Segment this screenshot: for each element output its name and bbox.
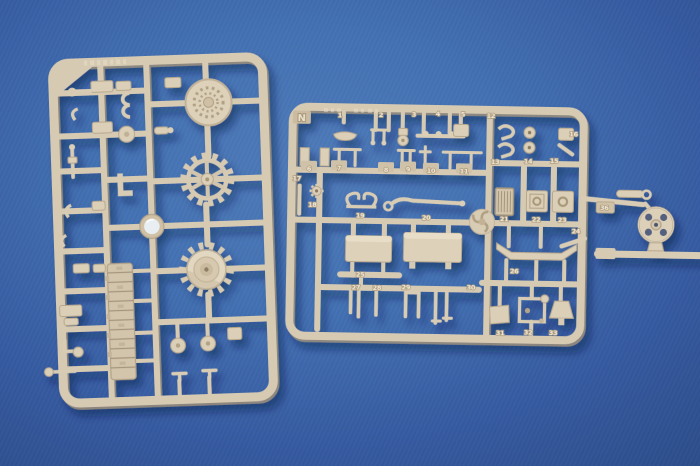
stowage-dish — [333, 132, 356, 141]
part-number-label: 36 — [600, 204, 609, 212]
part-number-label: 15 — [550, 157, 559, 165]
part-number-label: 13 — [491, 158, 500, 166]
part-number-label: 27 — [352, 284, 361, 292]
sprue-letter: N — [298, 113, 307, 124]
fuel-tank-1 — [345, 223, 392, 262]
sprue-right: N — [289, 106, 700, 345]
pins-and-fork — [350, 291, 452, 324]
part-number-label: 33 — [549, 329, 558, 337]
scroll-bracket — [346, 193, 376, 207]
rollers — [524, 127, 536, 153]
part-number-label: 16 — [569, 130, 578, 138]
u-bracket — [370, 130, 386, 146]
part-number-label: 2 — [379, 111, 383, 119]
photo-backdrop: N — [0, 0, 700, 466]
perforated-roadwheel — [185, 79, 233, 127]
part-number-label: 22 — [532, 216, 541, 224]
part-number-label: 20 — [422, 214, 431, 222]
lamp-cone-33 — [549, 301, 573, 325]
fuel-tank-2 — [403, 220, 462, 269]
starburst-wheel — [309, 184, 323, 198]
block-part-5 — [454, 124, 469, 136]
part-number-label: 10 — [427, 167, 436, 175]
idler-wheel — [638, 204, 674, 252]
hatch-box-23 — [552, 191, 573, 212]
part-number-label: 24 — [572, 227, 581, 235]
sprue-left — [34, 54, 276, 406]
part-number-label: 19 — [356, 212, 365, 220]
part-number-label: 28 — [373, 284, 382, 292]
small-hub-cap — [118, 126, 135, 143]
pulley-part — [398, 128, 409, 145]
part-number-label: 21 — [500, 215, 509, 223]
frame-bracket-32 — [519, 294, 548, 323]
part-number-label: 31 — [496, 329, 505, 337]
part-number-label: 30 — [467, 284, 476, 292]
part-number-label: 29 — [402, 283, 411, 291]
hook-pawls — [498, 126, 513, 158]
drive-sprocket-cone — [182, 245, 232, 295]
hatch-box-22 — [526, 191, 547, 212]
part-number-label: 25 — [356, 271, 365, 279]
radiator-grille — [495, 188, 513, 215]
part-number-label: 3 — [412, 111, 416, 119]
part-number-label: 14 — [524, 158, 533, 166]
plate-31 — [489, 305, 509, 324]
t-shaped-parts — [173, 370, 216, 380]
three-blade-fan — [469, 209, 494, 234]
part-number-label: 12 — [487, 112, 496, 120]
part-number-label: 17 — [292, 174, 301, 182]
part-number-label: 7 — [337, 164, 341, 172]
sprocket-ring — [183, 155, 232, 204]
part-number-label: 26 — [510, 267, 519, 275]
clear-lens — [139, 214, 164, 239]
tow-rod — [384, 199, 465, 212]
part-number-label: 23 — [558, 216, 567, 224]
sprue-photo: N — [0, 0, 700, 466]
part-number-label: 32 — [524, 329, 533, 337]
part-number-label: 18 — [308, 201, 317, 209]
part-number-label: 11 — [460, 167, 469, 175]
